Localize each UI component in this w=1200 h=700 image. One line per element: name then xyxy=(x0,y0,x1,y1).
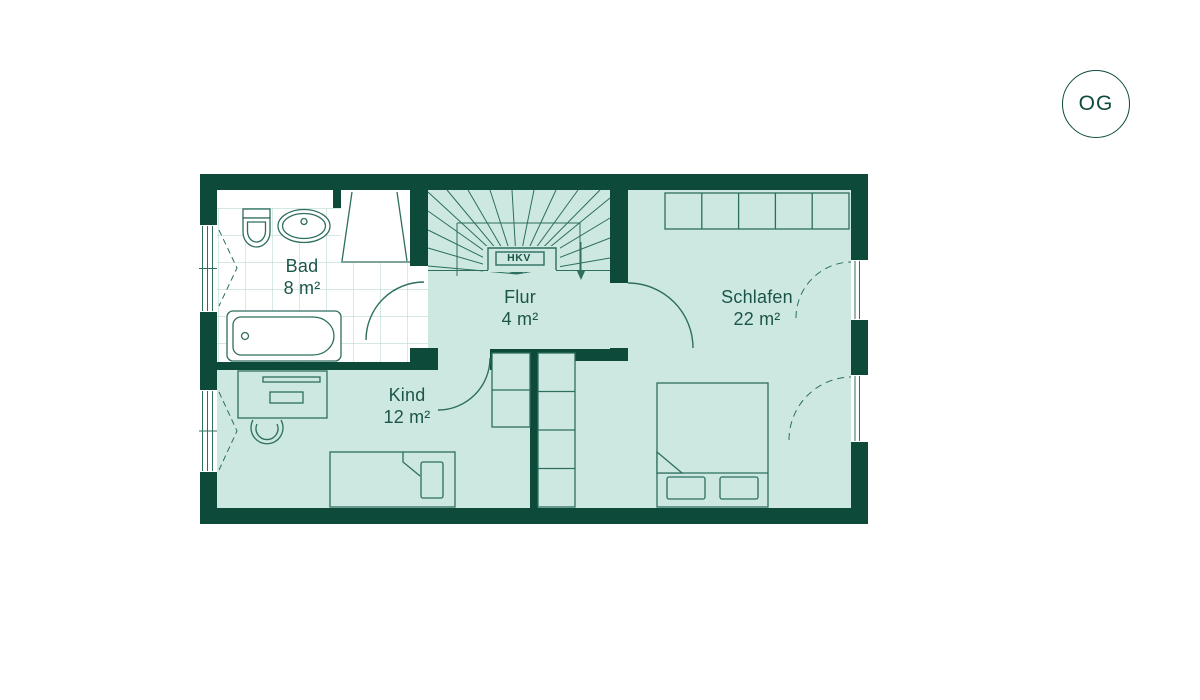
wardrobe xyxy=(665,193,849,229)
room-area: 22 m² xyxy=(677,308,837,330)
wall-bad-kind xyxy=(217,362,438,370)
room-label-flur: Flur 4 m² xyxy=(440,286,600,330)
room-area: 4 m² xyxy=(440,308,600,330)
room-name: Flur xyxy=(440,286,600,308)
floor-badge: OG xyxy=(1062,70,1130,138)
hkv-label: HKV xyxy=(494,251,544,265)
floorplan xyxy=(0,0,1200,700)
room-area: 12 m² xyxy=(327,406,487,428)
bed-double xyxy=(657,383,768,507)
desk xyxy=(238,371,327,418)
page: Bad 8 m² Flur 4 m² Schlafen 22 m² Kind 1… xyxy=(0,0,1200,700)
schlafen-door-gap xyxy=(610,283,628,348)
wall-bad-flur xyxy=(410,190,428,266)
room-area: 8 m² xyxy=(222,277,382,299)
wall-flur-schlafen xyxy=(610,190,628,283)
floor-badge-text: OG xyxy=(1079,92,1114,116)
sink xyxy=(278,210,330,243)
room-label-schlafen: Schlafen 22 m² xyxy=(677,286,837,330)
room-label-kind: Kind 12 m² xyxy=(327,384,487,428)
pillow xyxy=(720,477,758,499)
cabinet-schlafen xyxy=(538,353,575,507)
room-label-bad: Bad 8 m² xyxy=(222,255,382,299)
room-name: Schlafen xyxy=(677,286,837,308)
pillow xyxy=(421,462,443,498)
bathtub xyxy=(227,311,341,361)
wall-bath-divider xyxy=(333,174,341,208)
wall-kind-schlafen xyxy=(530,361,538,508)
bed-single xyxy=(330,452,455,507)
room-name: Kind xyxy=(327,384,487,406)
kind-door-gap xyxy=(438,349,490,370)
pillow xyxy=(667,477,705,499)
cabinet-kind xyxy=(492,353,530,427)
toilet xyxy=(243,209,270,247)
room-name: Bad xyxy=(222,255,382,277)
